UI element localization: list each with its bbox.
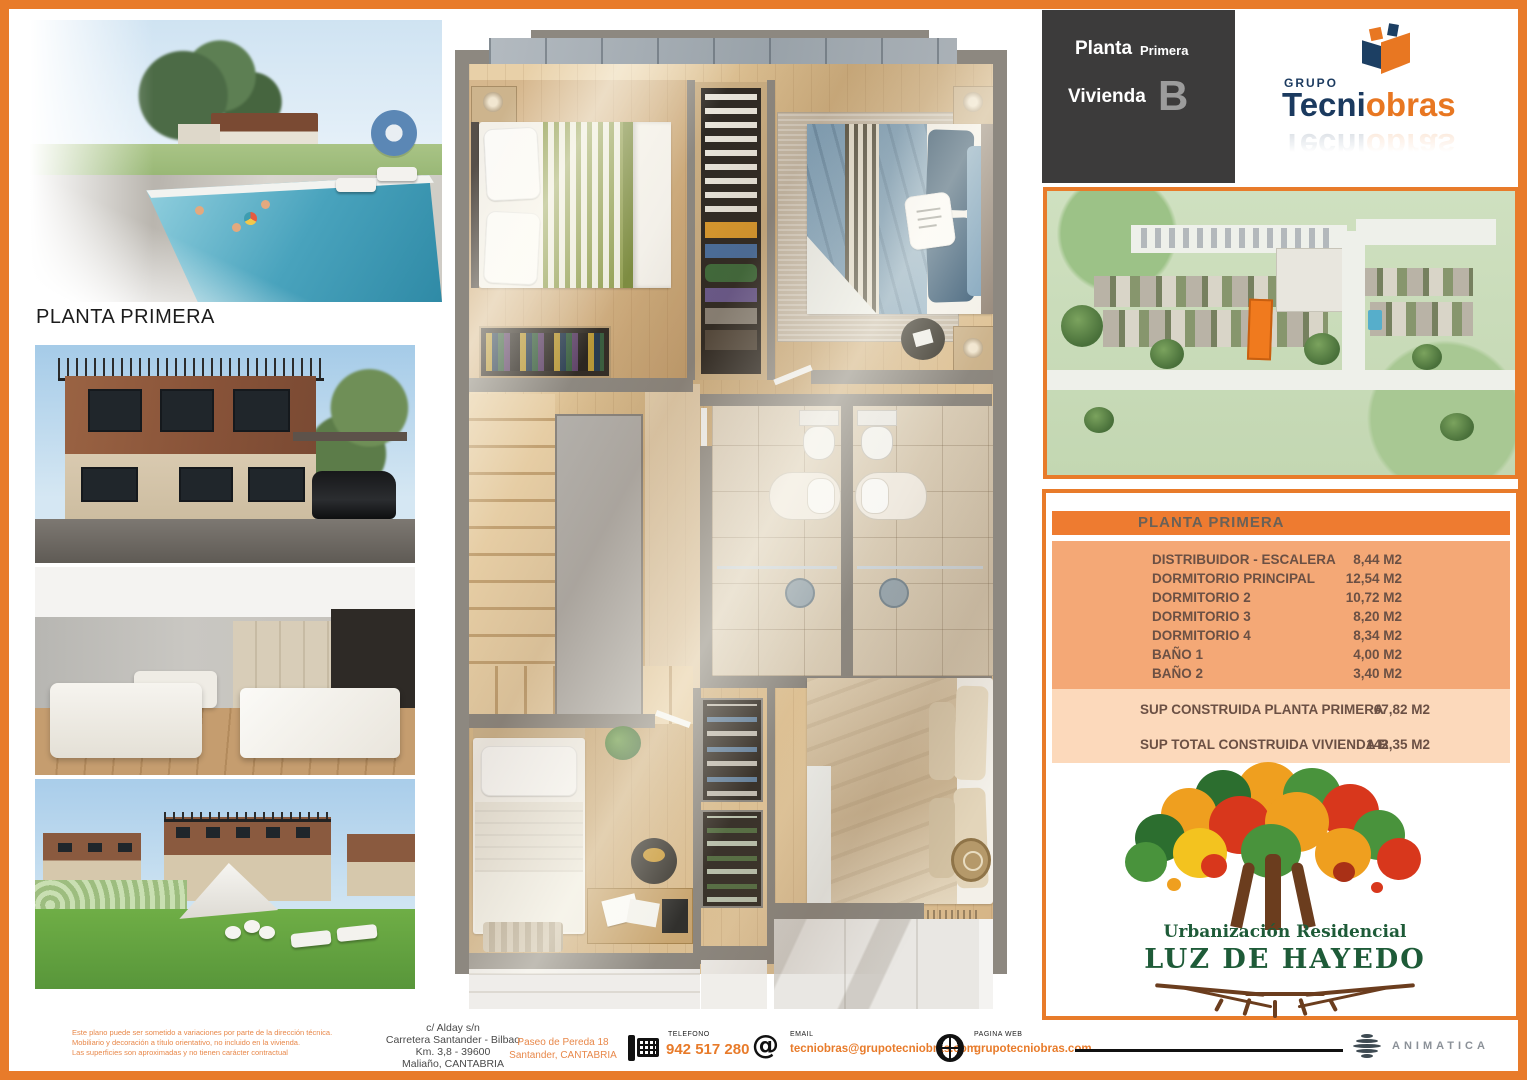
page-title: PLANTA PRIMERA [36,306,215,329]
email-icon: @ [752,1030,779,1061]
brand-name-reflection: Tecniobras [1282,126,1456,164]
tecniobras-logo: GRUPO Tecniobras Tecniobras [1235,10,1518,183]
photo-pool [30,20,442,302]
web-label: PAGINA WEB [974,1031,1022,1038]
sofa [50,683,202,758]
bed [240,688,400,759]
plan-id-box: Planta Primera Vivienda B [1042,10,1235,183]
development-name: LUZ DE HAYEDO [1125,944,1445,975]
table-header: PLANTA PRIMERA [1052,511,1510,535]
brochure-page: PLANTA PRIMERA [0,0,1527,1080]
tecniobras-logo-icon [1362,28,1410,78]
vivienda-label: Vivienda [1068,86,1146,108]
planta-label: Planta [1075,38,1132,60]
table-row: BAÑO 23,40 M2 [1052,664,1510,683]
car [312,471,396,519]
web-address: grupotecniobras.com [974,1043,1092,1055]
eat-sleep-pillow [903,191,956,251]
address-maliano: c/ Alday s/n Carretera Santander - Bilba… [378,1022,528,1070]
photo-interior [35,567,415,775]
round-table [951,838,991,882]
brand-name: Tecniobras [1282,86,1456,124]
top-terrace-tiles [489,38,957,66]
table-row: BAÑO 14,00 M2 [1052,645,1510,664]
table-row: DORMITORIO 48,34 M2 [1052,626,1510,645]
phone-number: 942 517 280 [666,1041,749,1058]
surface-table: DISTRIBUIDOR - ESCALERA8,44 M2 DORMITORI… [1052,541,1510,693]
terrace [774,919,993,1009]
desk-chair [631,838,677,884]
footer-divider [1075,1049,1343,1052]
vivienda-value: B [1158,72,1188,120]
phone-label: TELEFONO [668,1031,710,1038]
address-santander: Paseo de Pereda 18 Santander, CANTABRIA [508,1036,618,1062]
summary-row: SUP TOTAL CONSTRUIDA VIVIENDA B142,35 M2 [1052,734,1510,756]
photo-exterior [35,345,415,563]
phone-icon [628,1035,660,1061]
table-row: DORMITORIO 210,72 M2 [1052,588,1510,607]
animatica-logo-icon [1352,1034,1382,1060]
aerial-highlight-plot [1247,299,1273,361]
globe-icon [936,1034,964,1062]
floorplan-planta-primera [455,26,1007,1012]
photo-garden [35,779,415,989]
photo-aerial-siteplan [1043,187,1519,479]
table-row: DORMITORIO PRINCIPAL12,54 M2 [1052,569,1510,588]
development-subtitle: Urbanización Residencial [1125,922,1445,942]
pouf [901,318,945,360]
luz-de-hayedo-logo: Urbanización Residencial LUZ DE HAYEDO [1125,762,1445,1020]
email-label: EMAIL [790,1031,814,1038]
closet-sports [479,326,611,378]
disclaimer-text: Este plano puede ser sometido a variacio… [72,1028,342,1058]
planta-value: Primera [1140,43,1188,58]
plant [605,726,641,760]
surface-summary: SUP CONSTRUIDA PLANTA PRIMERA67,82 M2 SU… [1052,689,1510,763]
table-row: DORMITORIO 38,20 M2 [1052,607,1510,626]
summary-row: SUP CONSTRUIDA PLANTA PRIMERA67,82 M2 [1052,699,1510,721]
animatica-name: ANIMATICA [1392,1040,1489,1052]
table-row: DISTRIBUIDOR - ESCALERA8,44 M2 [1052,550,1510,569]
desk [587,888,693,944]
